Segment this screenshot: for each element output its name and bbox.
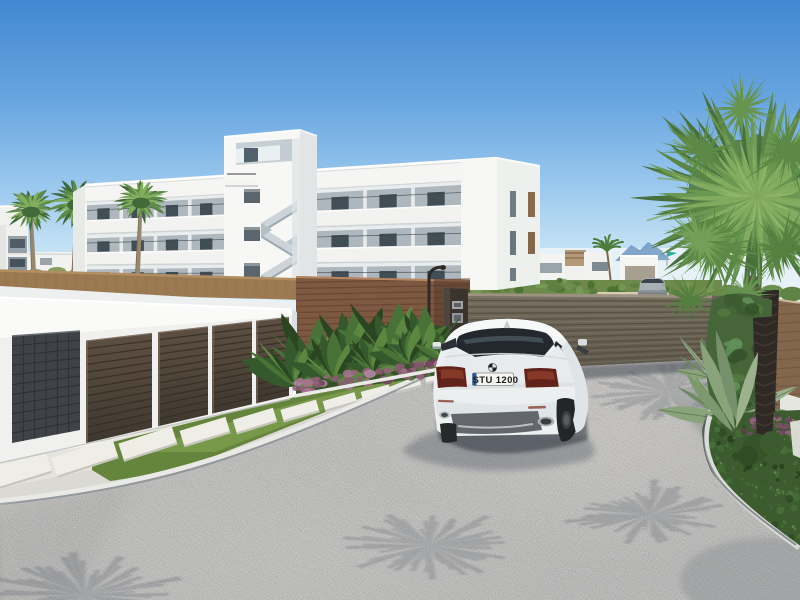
svg-text:STU 1200: STU 1200 (473, 375, 519, 386)
